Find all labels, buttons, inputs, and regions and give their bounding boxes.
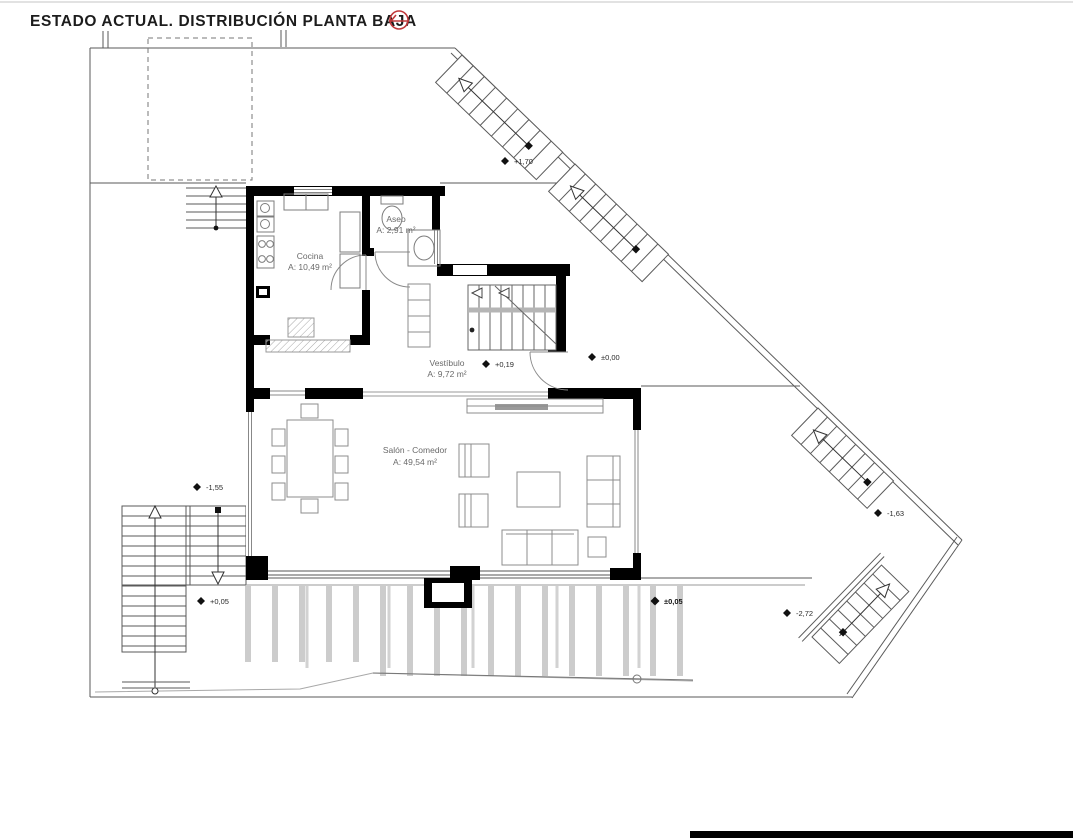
svg-text:+0,05: +0,05 xyxy=(210,597,229,606)
svg-text:+1,70: +1,70 xyxy=(514,157,533,166)
svg-text:-2,72: -2,72 xyxy=(796,609,813,618)
svg-text:±0,05: ±0,05 xyxy=(664,597,683,606)
room-area-salon: A: 49,54 m² xyxy=(393,457,437,467)
side-table xyxy=(588,537,606,557)
svg-text:-1,55: -1,55 xyxy=(206,483,223,492)
exterior-stair-northwest xyxy=(186,186,246,230)
svg-text:±0,00: ±0,00 xyxy=(601,353,620,362)
level-marker-minus163: -1,63 xyxy=(874,509,904,518)
svg-text:-1,63: -1,63 xyxy=(887,509,904,518)
level-marker-minus272: -2,72 xyxy=(783,609,813,618)
kitchen-fixtures xyxy=(256,194,360,352)
page-title: ESTADO ACTUAL. DISTRIBUCIÓN PLANTA BAJA xyxy=(30,12,417,30)
room-area-vestibulo: A: 9,72 m² xyxy=(427,369,466,379)
exterior-stair-southeast xyxy=(799,553,915,671)
interior-staircase xyxy=(468,285,556,350)
sofa-east xyxy=(587,456,620,527)
level-marker-zero: ±0,00 xyxy=(588,353,620,362)
coffee-table xyxy=(517,472,560,507)
room-label-salon: Salón - Comedor xyxy=(383,445,447,455)
bottom-crop-bar xyxy=(690,831,1073,838)
terrace-chimney xyxy=(424,578,472,608)
dining-table xyxy=(287,420,333,497)
floor-plan-svg: ESTADO ACTUAL. DISTRIBUCIÓN PLANTA BAJA xyxy=(0,0,1073,838)
room-area-cocina: A: 10,49 m² xyxy=(288,262,332,272)
level-markers: +1,70 ±0,00 +0,19 -1,55 -1,63 +0,05 ±0,0… xyxy=(193,157,904,618)
level-marker-plus170: +1,70 xyxy=(501,157,533,166)
level-marker-minus155: -1,55 xyxy=(193,483,223,492)
level-marker-pm005: ±0,05 xyxy=(651,597,683,607)
floor-plan-canvas: ESTADO ACTUAL. DISTRIBUCIÓN PLANTA BAJA xyxy=(0,0,1073,838)
exterior-stair-northeast-1 xyxy=(436,55,563,180)
room-label-cocina: Cocina xyxy=(297,251,324,261)
level-marker-plus005: +0,05 xyxy=(197,597,229,606)
salon-furniture xyxy=(272,399,620,565)
bench xyxy=(266,340,350,352)
kitchen-door xyxy=(331,255,366,290)
sofa-south xyxy=(502,530,578,565)
armchair-1 xyxy=(459,444,489,477)
windows xyxy=(246,187,641,575)
washer xyxy=(288,318,314,337)
washbasin xyxy=(414,236,434,260)
tv xyxy=(495,404,548,410)
room-area-aseo: A: 2,91 m² xyxy=(376,225,415,235)
exterior-stair-northeast-2 xyxy=(549,164,669,282)
room-label-vestibulo: Vestíbulo xyxy=(430,358,465,368)
building-walls xyxy=(246,186,641,580)
entrance-door xyxy=(530,352,568,390)
terrace-deck xyxy=(246,578,812,683)
room-label-aseo: Aseo xyxy=(386,214,406,224)
wc-tank xyxy=(381,196,403,204)
upper-floor-projection-dashed xyxy=(148,38,252,180)
armchair-2 xyxy=(459,494,488,527)
aseo-door xyxy=(375,252,410,287)
vestibule-cabinet xyxy=(408,284,430,347)
svg-text:+0,19: +0,19 xyxy=(495,360,514,369)
level-marker-plus019: +0,19 xyxy=(482,360,514,369)
